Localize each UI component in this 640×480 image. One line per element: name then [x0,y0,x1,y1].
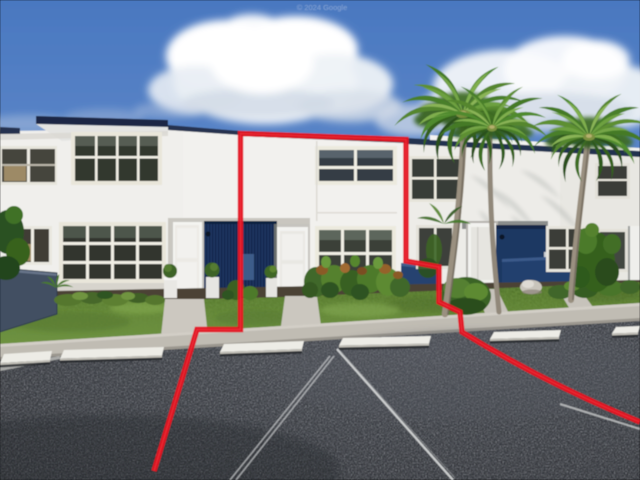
svg-text:© 2024 Google: © 2024 Google [297,3,348,12]
